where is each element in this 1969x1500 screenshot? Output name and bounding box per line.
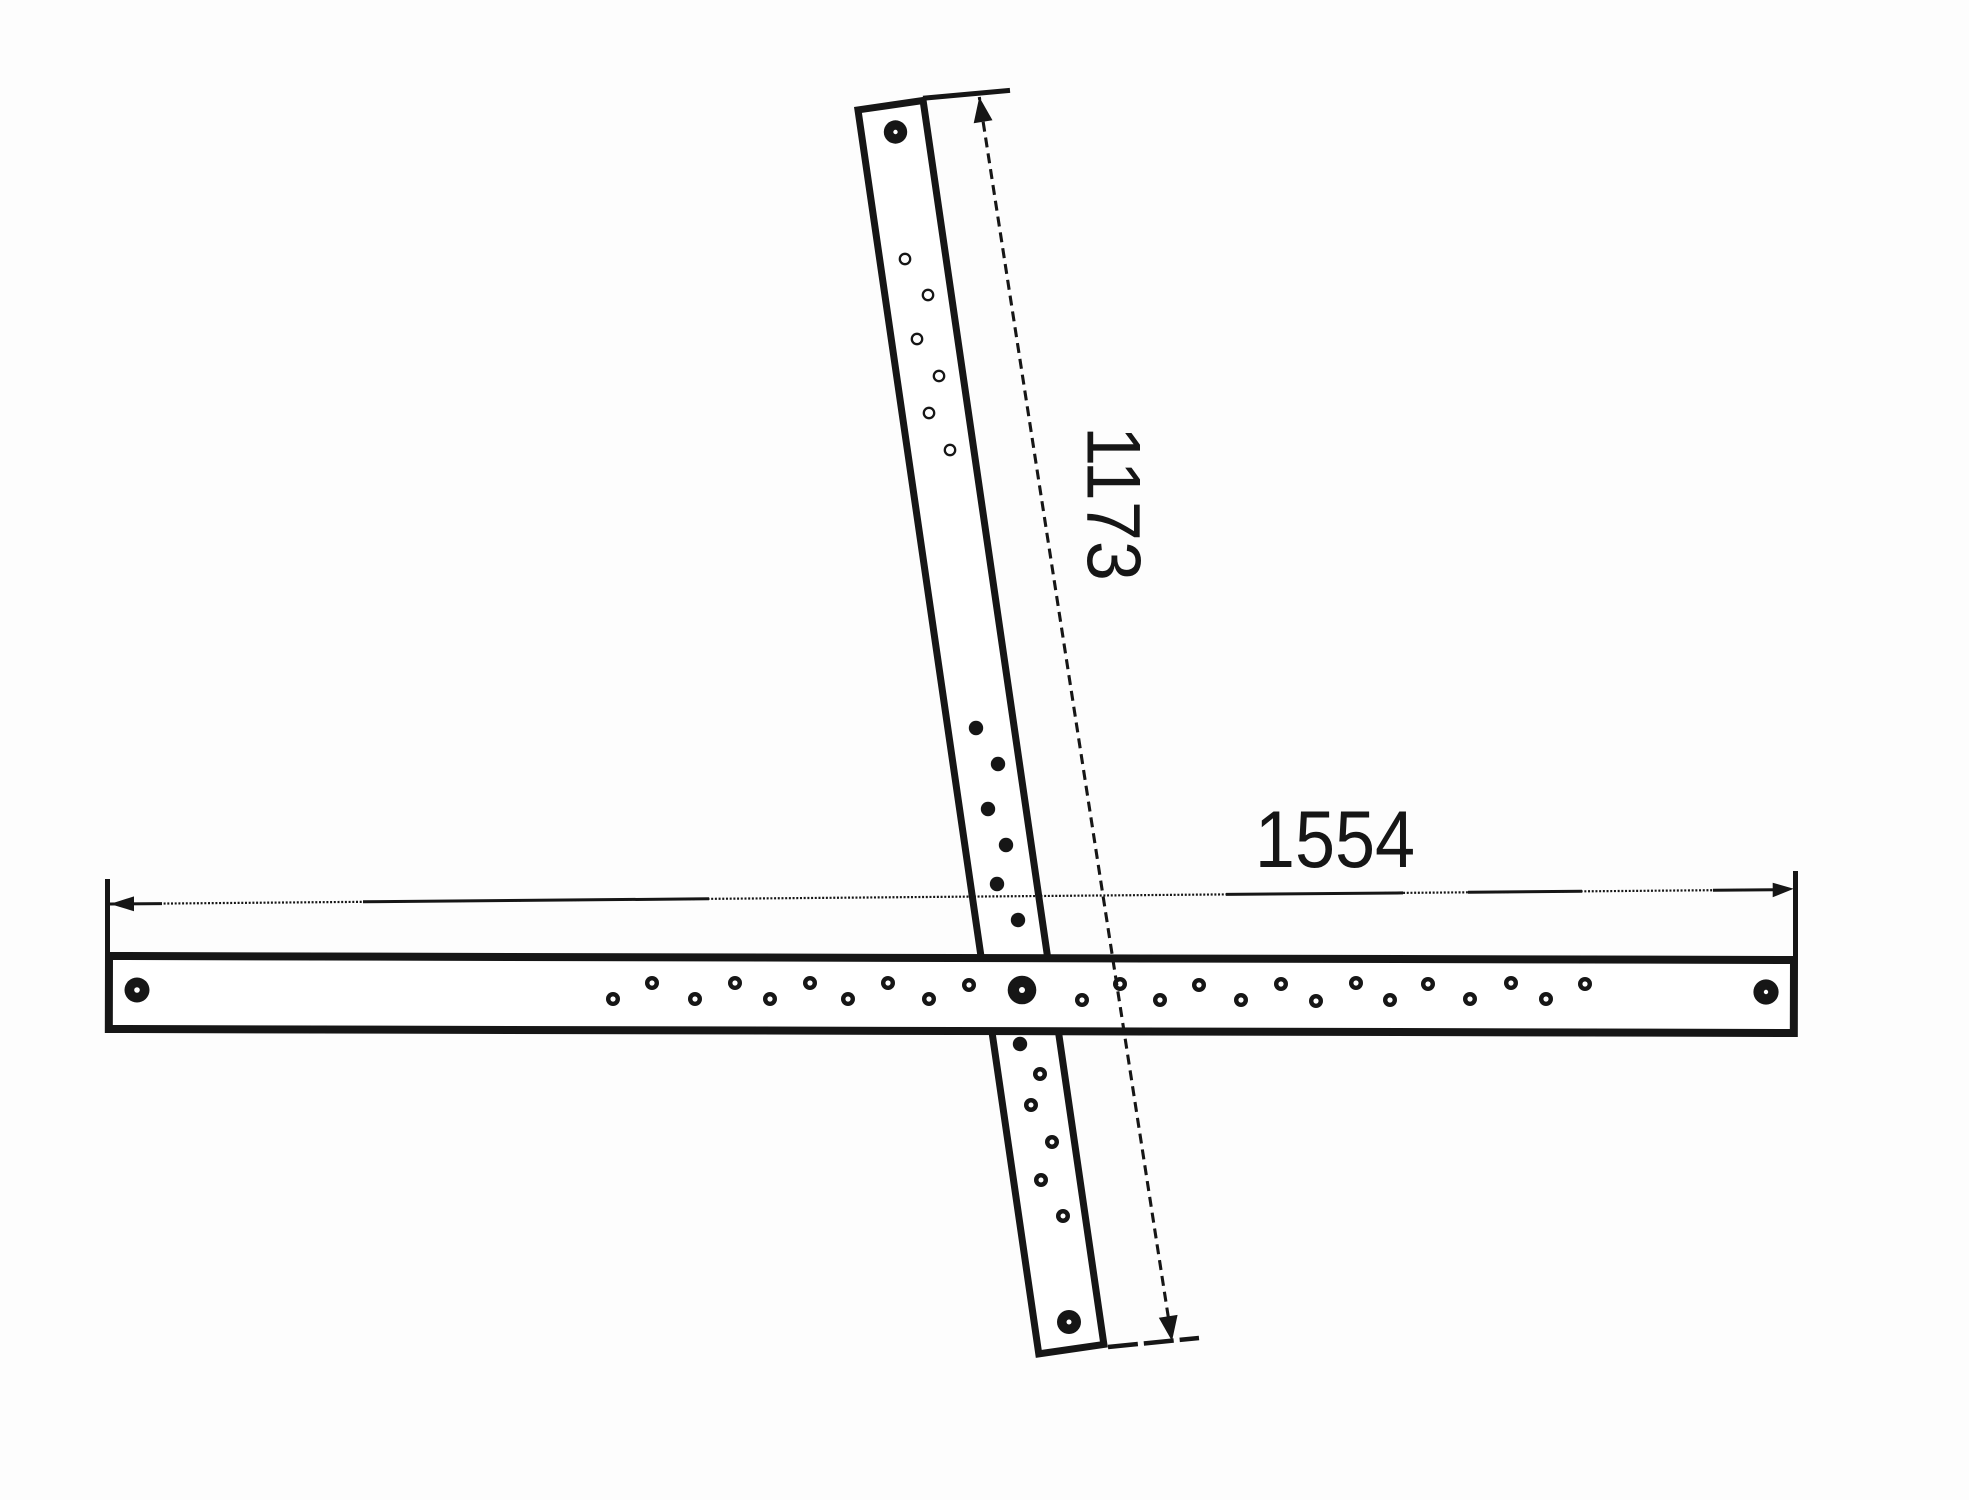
svg-text:1554: 1554 xyxy=(1255,795,1415,885)
svg-text:1173: 1173 xyxy=(1071,426,1156,581)
